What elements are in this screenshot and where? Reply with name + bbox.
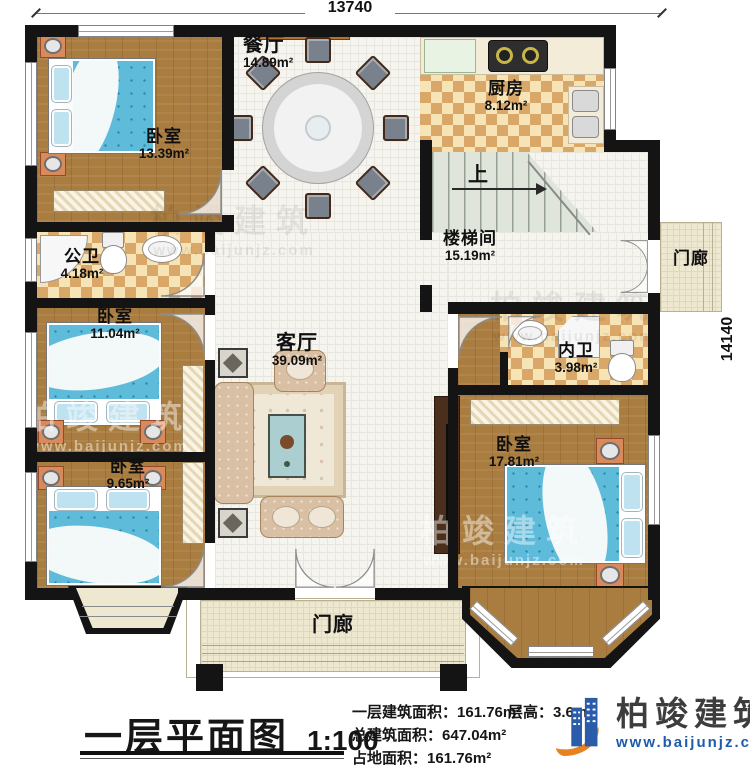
window [604,68,616,130]
toilet-icon [606,340,638,382]
stat-total-area: 总建筑面积：647.04m² [352,724,521,747]
nightstand [40,34,66,58]
kitchen-window-box [424,39,476,73]
porch-step-line [202,661,464,662]
room-label-kitchen: 厨房8.12m² [485,80,528,114]
bay-window-left-line [82,606,174,607]
dining-table-center [305,115,331,141]
wall [448,368,458,600]
porch-column [196,664,223,691]
door-arc [160,313,205,358]
window [25,332,37,428]
wall [205,222,215,252]
room-label-bedroom-topleft: 卧室13.39m² [139,128,189,162]
title-underline-thin [80,758,344,759]
stairs-up-label: 上 [468,158,488,187]
end-table [218,348,248,378]
wall [648,314,660,435]
brand-logo-icon [550,694,612,758]
bay-window-left-glass [76,588,180,628]
nightstand [140,420,166,444]
dining-chair [383,115,409,141]
door-arc [177,170,222,215]
room-label-dining: 餐厅14.89m² [243,34,293,71]
stove-burner [496,47,513,64]
wardrobe [182,462,204,544]
bed [46,486,162,586]
bay-window-right-pane [528,646,594,657]
door-arc [160,252,205,297]
nightstand [596,562,624,588]
throw-pillow [272,506,300,528]
room-label-bedroom-right: 卧室17.81m² [489,436,539,470]
nightstand [40,152,66,176]
wall [222,215,234,232]
sofa-main [214,382,254,504]
wall [604,140,660,152]
throw-pillow [308,506,336,528]
porch-column [440,664,467,691]
door-arc [508,316,542,350]
floorplan-page: 13740 14140 [0,0,750,771]
room-label-bedroom-midleft: 卧室11.04m² [90,308,140,342]
stat-floor-area: 一层建筑面积：161.76m² [352,701,521,724]
room-label-bath-public: 公卫4.18m² [61,248,104,282]
wall [648,152,660,240]
wardrobe [53,190,165,212]
title-underline [80,751,344,755]
nightstand [38,420,64,444]
nightstand [596,438,624,464]
wall [25,588,75,600]
wall [420,140,432,240]
dimension-right: 14140 [719,299,737,379]
dining-chair [305,193,331,219]
brand-name: 柏竣建筑 [616,694,750,734]
wall [222,25,234,170]
dimension-top: 13740 [305,0,395,17]
bed [504,464,646,564]
wall [420,285,432,312]
patio-door-arc [295,548,335,588]
area-stats: 一层建筑面积：161.76m² 总建筑面积：647.04m² 占地面积：161.… [352,701,521,770]
stairs-up-arrowhead [536,183,547,195]
brand-logo: 柏竣建筑 www.baijunjz.com [550,694,750,758]
wall [178,588,215,600]
window [78,25,174,37]
door-arc [458,316,503,361]
door-arc [160,543,205,588]
wall [205,295,215,315]
window [25,472,37,562]
coffee-table [268,414,306,478]
porch-right-column-line [712,223,713,311]
kitchen-sink-basin [572,116,599,138]
room-label-porch-bottom: 门廊 [312,614,354,636]
room-label-porch-right: 门廊 [673,250,709,269]
wall [25,222,222,232]
stat-land-area: 占地面积：161.76m² [352,747,521,770]
porch-step-line [202,645,464,646]
wall [604,25,616,68]
window [25,62,37,166]
stairs-up-arrow [452,188,538,190]
brand-website: www.baijunjz.com [616,734,750,751]
wardrobe [470,399,620,425]
wardrobe [182,365,204,453]
end-table [218,508,248,538]
wall [458,385,660,395]
room-label-bedroom-botleft: 卧室9.65m² [107,458,150,492]
kitchen-sink-basin [572,90,599,112]
room-label-living: 客厅39.09m² [272,332,322,369]
patio-door-arc [335,548,375,588]
room-label-bath-private: 内卫3.98m² [555,342,598,376]
entry-door-arc [620,240,648,268]
window [25,238,37,282]
dining-chair [305,37,331,63]
bay-window-left-line [79,616,177,617]
window [648,435,660,525]
wall [648,525,660,600]
stove-burner [522,47,539,64]
wall [448,302,660,314]
wall [375,588,470,600]
entry-door-arc [620,265,648,293]
wall [215,588,295,600]
porch-step-line [202,653,464,654]
room-label-stairwell: 楼梯间15.19m² [443,230,497,264]
